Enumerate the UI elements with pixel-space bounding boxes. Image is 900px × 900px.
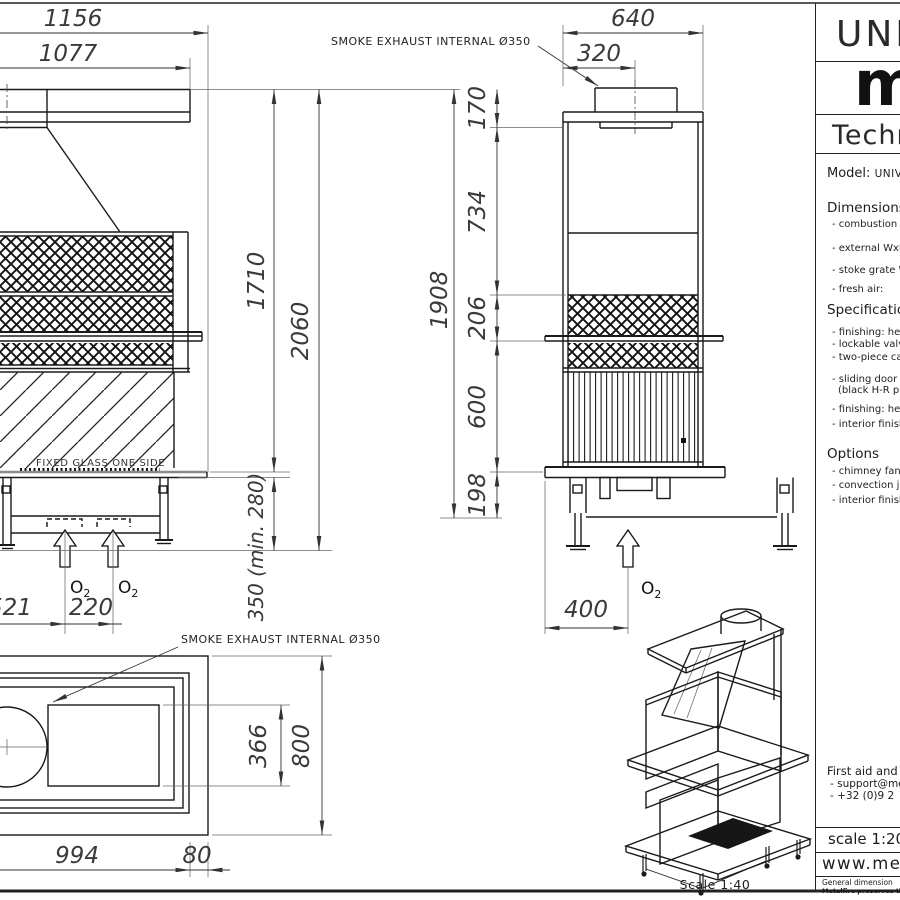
o2-label: O2: [641, 579, 661, 601]
dimensions-item: - external WxD: [832, 243, 900, 254]
fixed-glass-label: FIXED GLASS ONE SIDE: [36, 458, 165, 469]
dim-back-offset: 80: [182, 843, 211, 869]
dim-intake-offset: 521: [0, 595, 32, 621]
dim-hood-section: 734: [465, 190, 491, 234]
specifications-item: - lockable valv: [832, 339, 900, 350]
model-label: Model:: [827, 166, 870, 181]
dim-flue-center: 320: [577, 41, 621, 67]
side-body: [545, 122, 723, 467]
dim-plan-depth: 800: [289, 724, 315, 768]
options-item: - convection ja: [832, 480, 900, 491]
dim-intake-depth: 400: [564, 597, 608, 623]
scale-row: scale 1:20: [816, 827, 900, 852]
plan-smoke-exhaust-callout: SMOKE EXHAUST INTERNAL Ø350: [53, 633, 381, 702]
section-heading-dimensions: Dimensions: [827, 200, 900, 216]
dim-total-height: 2060: [288, 302, 314, 361]
section-heading-specifications: Specification: [827, 302, 900, 318]
contact-heading: First aid and: [827, 764, 898, 778]
model-row: Model: UNIV: [827, 166, 900, 181]
front-canopy: [0, 84, 190, 232]
model-value: UNIV: [875, 168, 900, 180]
dim-body-height: 1710: [244, 252, 270, 311]
contact-item: - support@me: [830, 778, 900, 790]
dim-intake-spacing: 220: [69, 595, 113, 621]
plan-view: SMOKE EXHAUST INTERNAL Ø350 366 800 994 …: [0, 633, 381, 877]
side-o2-arrow: O2: [617, 530, 661, 634]
dimensions-item: - combustion ch: [832, 219, 900, 230]
iso-canopy-pipe: [648, 609, 783, 673]
dimensions-item: - stoke grate W: [832, 265, 900, 276]
side-view: O2 SMOKE EXHAUST INTERNAL Ø350 640 320 1…: [331, 6, 797, 634]
dim-side-total-height: 1908: [427, 271, 453, 330]
iso-scale-label: Scale 1:40: [680, 877, 751, 892]
front-view: FIXED GLASS ONE SIDE: [0, 6, 460, 634]
dim-grate-depth: 366: [246, 724, 272, 768]
dim-total-depth: 640: [611, 6, 655, 32]
o2-arrow-icon: [617, 530, 639, 567]
specifications-item: - interior finishi: [832, 419, 900, 430]
dim-leg-section: 198: [465, 473, 491, 517]
dimensions-item: - fresh air:: [832, 284, 883, 295]
specifications-item: - two-piece ca: [832, 352, 900, 363]
fine-print-line: Metalfire preserves the ri: [822, 887, 900, 895]
options-item: - chimney fan: [832, 466, 900, 477]
dim-leg-height: 350 (min. 280): [244, 473, 268, 622]
front-glass: FIXED GLASS ONE SIDE: [0, 372, 174, 471]
smoke-exhaust-label: SMOKE EXHAUST INTERNAL Ø350: [331, 35, 531, 48]
specifications-item: - finishing: hea: [832, 327, 900, 338]
website-row: www.met: [816, 852, 900, 876]
isometric-view: Scale 1:40: [626, 609, 810, 895]
drawing-sheet: FIXED GLASS ONE SIDE: [0, 0, 900, 900]
side-flue-canopy: [563, 80, 703, 134]
specifications-item: (black H-R p: [838, 385, 899, 396]
title-block: UNIV m Techn Model: UNIV Dimensions - co…: [815, 3, 900, 891]
o2-label: O2: [118, 578, 138, 600]
side-smoke-exhaust-callout: SMOKE EXHAUST INTERNAL Ø350: [331, 35, 598, 86]
options-item: - interior finishi: [832, 495, 900, 506]
dim-firebox-section: 600: [465, 385, 491, 429]
front-base-legs: [0, 472, 207, 549]
technical-drawing: FIXED GLASS ONE SIDE: [0, 0, 900, 900]
dim-total-width: 1156: [44, 6, 103, 32]
dim-canopy-width: 1077: [39, 41, 98, 67]
stoke-grate: [48, 705, 159, 786]
section-heading-options: Options: [827, 446, 879, 462]
contact-item: - +32 (0)9 2: [830, 790, 894, 802]
plan-dimensions: 366 800 994 80: [0, 656, 332, 877]
dim-flue-section: 170: [465, 86, 491, 130]
document-type: Techn: [832, 120, 900, 151]
dim-grille-section: 206: [465, 296, 491, 340]
iso-grate: [688, 818, 773, 849]
front-grille-mesh: [0, 232, 202, 372]
iso-mesh-basket: [646, 672, 781, 779]
specifications-item: - sliding door i: [832, 374, 900, 385]
fine-print-line: General dimension: [822, 878, 893, 887]
brand-logo: m: [854, 56, 900, 112]
side-base-legs: [545, 467, 797, 550]
smoke-exhaust-label: SMOKE EXHAUST INTERNAL Ø350: [181, 633, 381, 646]
dim-body-width: 994: [55, 843, 99, 869]
specifications-item: - finishing: hea: [832, 404, 900, 415]
